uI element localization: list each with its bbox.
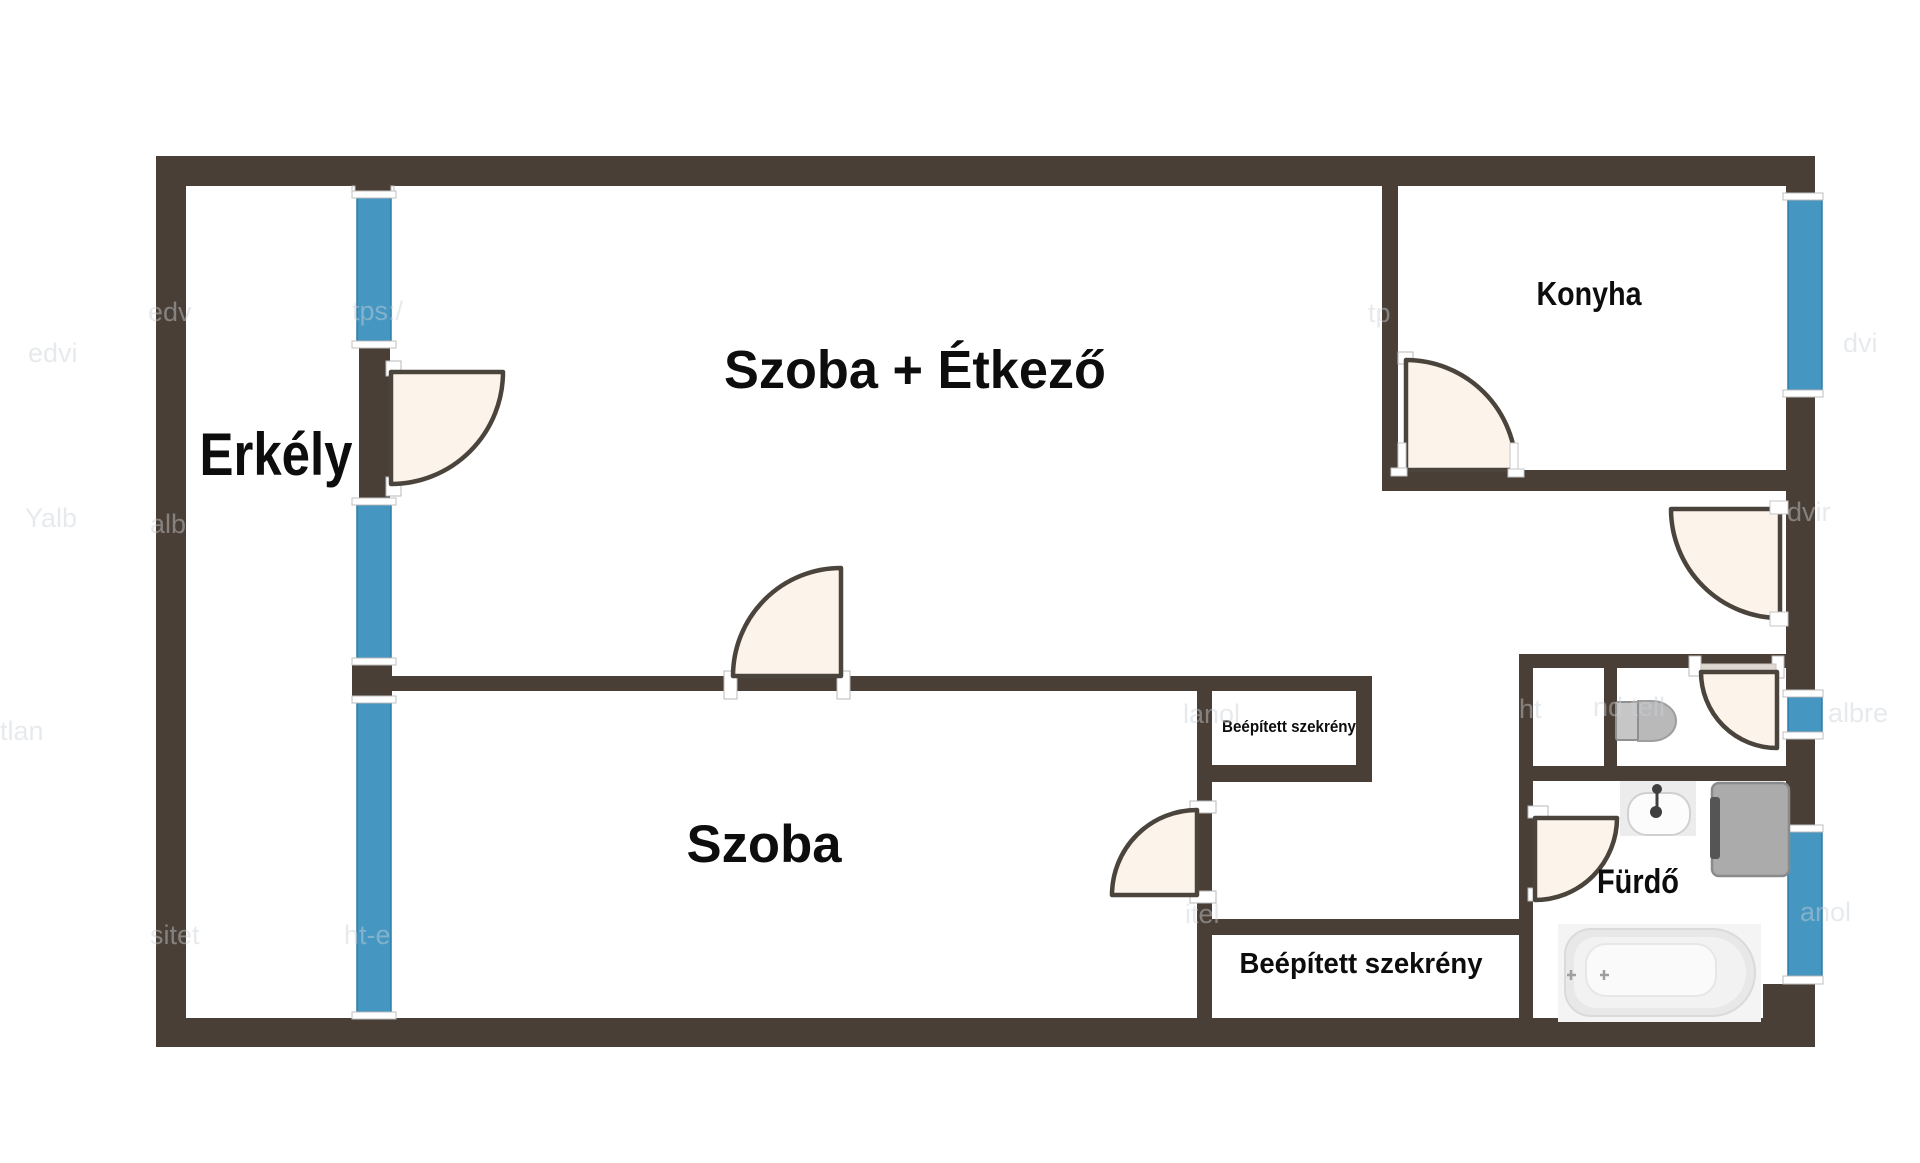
svg-text:nd tell: nd tell (1593, 692, 1665, 722)
svg-text:ht-e: ht-e (344, 920, 391, 950)
svg-text:alb: alb (150, 509, 186, 539)
svg-text:dvi: dvi (1843, 328, 1878, 358)
svg-text:albre: albre (1828, 698, 1888, 728)
svg-text:tps:/: tps:/ (352, 296, 404, 326)
svg-text:itel: itel (1185, 899, 1220, 929)
svg-text:sitet: sitet (150, 920, 200, 950)
svg-text:dvir: dvir (1787, 497, 1831, 527)
svg-text:Konyha: Konyha (1537, 275, 1643, 312)
svg-text:ht: ht (1519, 694, 1542, 724)
svg-text:Erkély: Erkély (200, 421, 354, 488)
svg-text:Beépített szekrény: Beépített szekrény (1240, 948, 1483, 980)
svg-text:Beépített szekrény: Beépített szekrény (1222, 717, 1356, 736)
svg-text:Yalb: Yalb (25, 503, 77, 533)
svg-text:tp: tp (1368, 298, 1391, 328)
svg-text:Szoba + Étkező: Szoba + Étkező (724, 340, 1106, 400)
svg-text:Szoba: Szoba (687, 815, 843, 874)
svg-text:edvi: edvi (28, 338, 78, 368)
svg-text:tlan: tlan (0, 716, 44, 746)
svg-text:edv: edv (148, 297, 192, 327)
svg-text:lanol: lanol (1183, 699, 1240, 729)
svg-text:Fürdő: Fürdő (1597, 863, 1679, 901)
svg-text:anol: anol (1800, 897, 1851, 927)
